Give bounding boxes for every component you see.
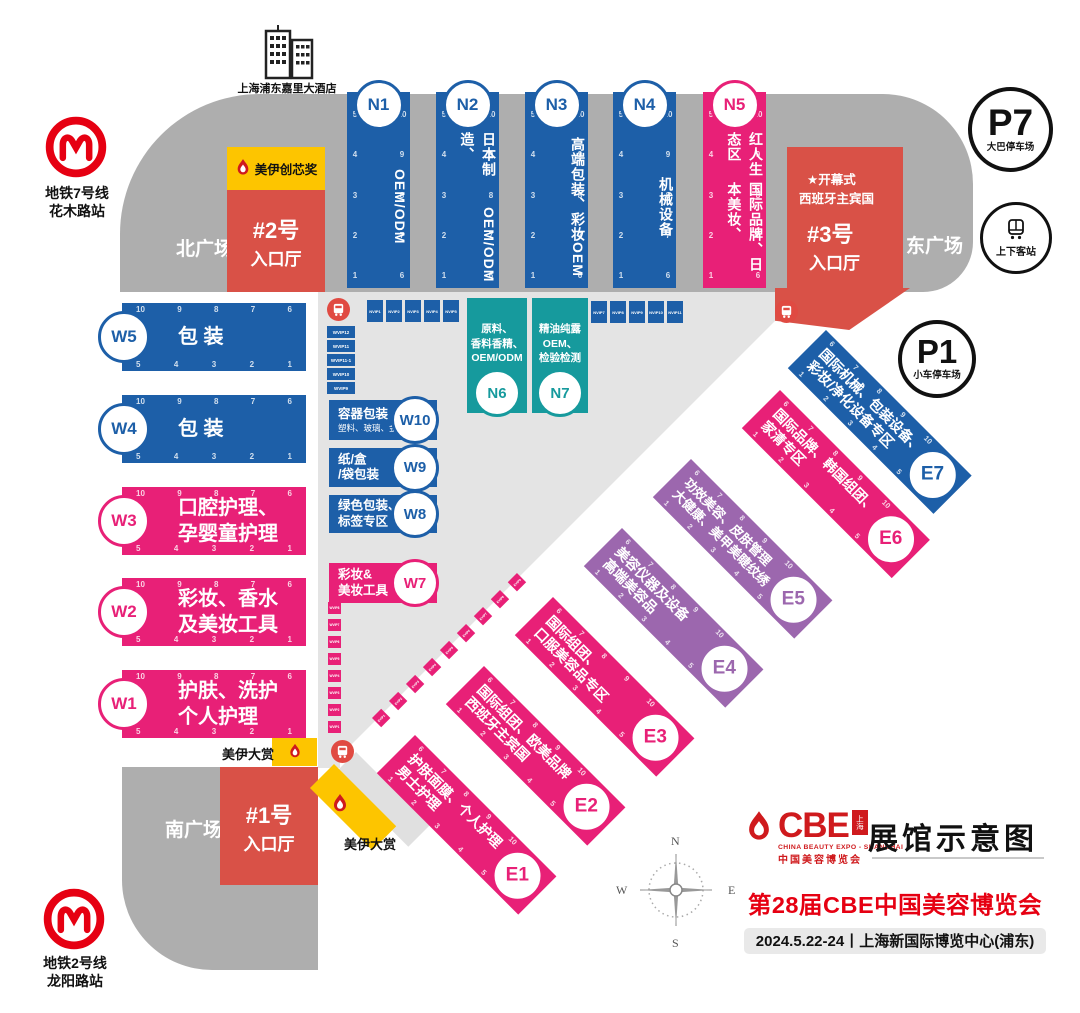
hall-n4-label: 机械设备: [613, 132, 676, 282]
hall-n5-badge: N5: [710, 80, 760, 130]
entrance-2: #2号 入口厅: [227, 190, 325, 292]
cbe-logo-word: CBE: [778, 810, 849, 842]
award-chuangxin-box: 美伊创芯奖: [227, 147, 325, 190]
parking-p1-label: 小车停车场: [913, 367, 961, 381]
compass-south-label: S: [672, 936, 679, 951]
hall-n6-badge: N6: [473, 369, 521, 417]
compass-east-label: E: [728, 883, 735, 898]
booth-numbers: 109876: [136, 305, 292, 314]
entrance-3-note2: 西班牙主宾国: [787, 188, 903, 207]
entrance-2-label: 入口厅: [251, 245, 302, 270]
east-plaza-label: 东广场: [906, 231, 963, 258]
hall-w5-badge: W5: [98, 311, 150, 363]
metro-line2-station: 龙阳路站: [20, 972, 130, 990]
meiyi-logo-icon: [235, 158, 251, 179]
hall-n7: 精油纯露 OEM、 检验检测 N7: [532, 298, 588, 413]
metro-line2-label: 地铁2号线 龙阳路站: [20, 954, 130, 990]
hall-w1: W1 109876 54321 护肤、洗护个人护理: [122, 670, 306, 738]
award-dashang-bottom-label: 美伊大赏: [344, 834, 396, 853]
title-block: CBE 上海 CHINA BEAUTY EXPO - SHANGHAI 中国美容…: [744, 810, 1046, 954]
hall-w10-badge: W10: [391, 396, 439, 444]
hall-n5-label: 红人生态区国际品牌、日本美妆、: [703, 132, 766, 282]
hall-n7-badge: N7: [536, 369, 584, 417]
entrance-1: #1号 入口厅: [220, 767, 318, 885]
nvip-room-group-b: NVIP7NVIP8NVIP9NVIP10NVIP11: [591, 301, 683, 323]
hall-n7-label: 精油纯露 OEM、 检验检测: [532, 322, 588, 366]
hall-w2-label: 彩妆、香水及美妆工具: [178, 586, 278, 638]
hall-w3-label: 口腔护理、孕婴童护理: [178, 495, 278, 547]
hotel-label: 上海浦东嘉里大酒店: [232, 80, 342, 96]
expo-title: 第28届CBE中国美容博览会: [744, 886, 1046, 920]
cbe-logo-badge: 上海: [852, 810, 868, 835]
hall-n3-badge: N3: [532, 80, 582, 130]
hall-n1: N1 54321 109876 OEM/ODM: [347, 92, 410, 288]
hall-n5: N5 54321 109876 红人生态区国际品牌、日本美妆、: [703, 92, 766, 288]
hall-w3-badge: W3: [98, 495, 150, 547]
meiyi-logo-icon: [331, 793, 349, 821]
hall-w7-label: 彩妆& 美妆工具: [338, 567, 388, 598]
hall-n2: N2 54321 109876 日本制造、OEM/ODM: [436, 92, 499, 288]
booth-numbers: 54321: [136, 360, 292, 369]
hall-w10: 容器包装 塑料、玻璃、金属 W10: [329, 400, 437, 440]
booth-numbers: 109876: [136, 397, 292, 406]
hall-n4: N4 54321 109876 机械设备: [613, 92, 676, 288]
parking-p7: P7 大巴停车场: [968, 87, 1053, 172]
hall-w8: 绿色包装、 标签专区 W8: [329, 495, 437, 533]
hall-w4: W4 109876 54321 包 装: [122, 395, 306, 463]
metro-line7-label: 地铁7号线 花木路站: [22, 184, 132, 220]
train-icon: [1003, 218, 1029, 242]
title-divider: [872, 857, 1044, 859]
hall-w8-badge: W8: [391, 490, 439, 538]
bus-stop-icon: [327, 298, 350, 321]
booth-numbers: 54321: [136, 452, 292, 461]
date-venue-bar: 2024.5.22-24丨上海新国际博览中心(浦东): [744, 928, 1046, 954]
compass-north-label: N: [671, 834, 680, 849]
hall-n2-badge: N2: [443, 80, 493, 130]
hall-w5-label: 包 装: [178, 324, 224, 350]
entrance-3-id: #3号: [787, 217, 903, 249]
metro-line7-line: 地铁7号线: [22, 184, 132, 202]
bus-stop-icon: [331, 740, 354, 763]
entrance-2-id: #2号: [253, 213, 299, 245]
hall-w4-badge: W4: [98, 403, 150, 455]
pickup-station: 上下客站: [980, 202, 1052, 274]
hall-w9: 纸/盒 /袋包装 W9: [329, 448, 437, 487]
meiyi-logo-icon: [288, 743, 302, 761]
award-dashang-top-box: [272, 738, 317, 766]
entrance-1-id: #1号: [246, 798, 292, 830]
metro-logo-icon: [45, 116, 107, 178]
south-plaza-label: 南广场: [165, 815, 222, 842]
hall-n3-label: 高端包装、彩妆OEM: [525, 132, 588, 282]
hall-w4-label: 包 装: [178, 416, 224, 442]
metro-line7-station: 花木路站: [22, 202, 132, 220]
parking-p1: P1 小车停车场: [898, 320, 976, 398]
hall-n3: N3 54321 109876 高端包装、彩妆OEM: [525, 92, 588, 288]
metro-logo-icon: [43, 888, 105, 950]
award-chuangxin-label: 美伊创芯奖: [255, 159, 318, 178]
metro-line2-line: 地铁2号线: [20, 954, 130, 972]
wvip-room-column-upper: WVIP12WVIP11WVIP11-1WVIP10WVIP9: [327, 326, 355, 394]
hall-w3: W3 109876 54321 口腔护理、孕婴童护理: [122, 487, 306, 555]
award-dashang-top-label: 美伊大赏: [222, 744, 274, 763]
hall-w9-badge: W9: [391, 444, 439, 492]
north-plaza-label: 北广场: [176, 234, 233, 261]
hall-w5: W5 109876 54321 包 装: [122, 303, 306, 371]
parking-p7-id: P7: [988, 106, 1033, 139]
bus-stop-icon: [775, 300, 798, 323]
compass-west-label: W: [616, 883, 627, 898]
hall-n6-label: 原料、 香料香精、 OEM/ODM: [467, 322, 527, 366]
hall-w1-badge: W1: [98, 678, 150, 730]
hall-w2: W2 109876 54321 彩妆、香水及美妆工具: [122, 578, 306, 646]
hall-w7: 彩妆& 美妆工具 W7: [329, 563, 437, 603]
venue-map: 北广场 东广场 南广场 上海浦东嘉里大酒店 地铁7号线 花木路: [0, 0, 1080, 1013]
hall-w1-label: 护肤、洗护个人护理: [178, 678, 278, 730]
parking-p1-id: P1: [917, 337, 957, 367]
entrance-1-label: 入口厅: [244, 830, 295, 855]
compass-icon: N W E S: [628, 842, 724, 938]
entrance-3-label: 入口厅: [787, 249, 903, 274]
hall-w2-badge: W2: [98, 586, 150, 638]
nvip-room-group-a: NVIP1NVIP2NVIP3NVIP4NVIP5: [367, 300, 459, 322]
cbe-flame-icon: [744, 810, 774, 847]
hall-w9-label: 纸/盒 /袋包装: [338, 452, 379, 483]
pickup-station-label: 上下客站: [996, 243, 1036, 258]
entrance-3-note1: ★开幕式: [787, 169, 903, 188]
hall-n1-label: OEM/ODM: [347, 132, 410, 282]
hall-n1-badge: N1: [354, 80, 404, 130]
hall-w7-badge: W7: [391, 559, 439, 607]
hall-n6: 原料、 香料香精、 OEM/ODM N6: [467, 298, 527, 413]
wvip-room-column-lower: WVIP8WVIP7WVIP6WVIP5WVIP4WVIP3WVIP2WVIP1: [328, 602, 341, 733]
hall-n2-label: 日本制造、OEM/ODM: [436, 132, 499, 282]
hall-n4-badge: N4: [620, 80, 670, 130]
parking-p7-label: 大巴停车场: [987, 139, 1035, 153]
map-title: 展馆示意图: [868, 814, 1048, 858]
entrance-3: ★开幕式 西班牙主宾国 #3号 入口厅: [787, 147, 903, 292]
hotel-building-icon: [256, 24, 320, 82]
